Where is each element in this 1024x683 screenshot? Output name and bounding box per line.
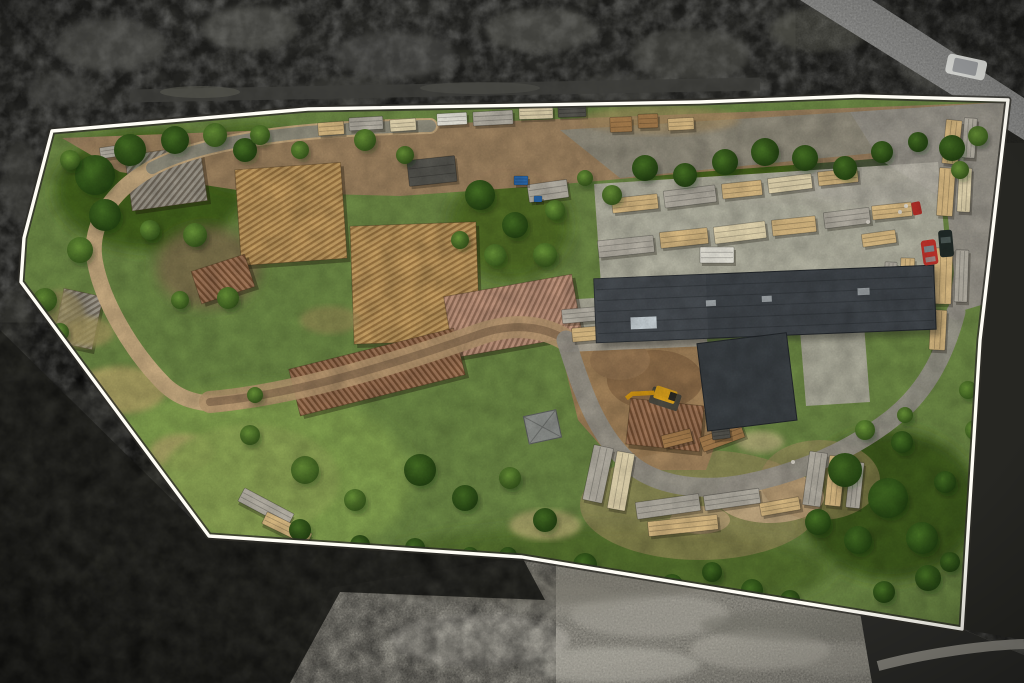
aerial-photo <box>0 0 1024 683</box>
vignette <box>0 0 1024 683</box>
aerial-photo-stage <box>0 0 1024 683</box>
